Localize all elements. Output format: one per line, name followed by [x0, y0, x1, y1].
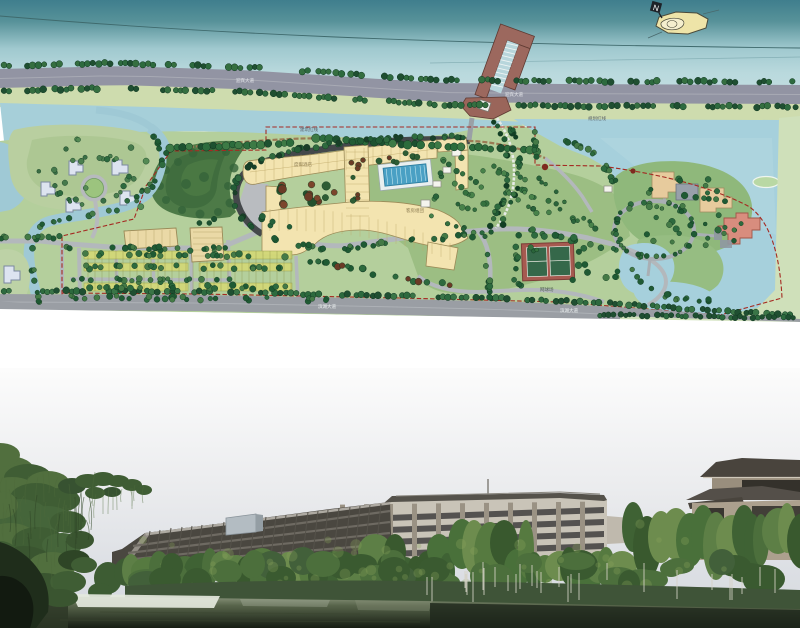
svg-text:迎宾大道: 迎宾大道: [505, 91, 523, 98]
svg-text:度假酒店: 度假酒店: [294, 161, 312, 168]
svg-text:网球场: 网球场: [540, 286, 554, 293]
svg-text:迎宾大道: 迎宾大道: [236, 77, 254, 84]
svg-text:规划红线: 规划红线: [588, 115, 606, 122]
svg-text:建筑红线: 建筑红线: [300, 126, 318, 133]
svg-text:滨湖大道: 滨湖大道: [560, 307, 578, 314]
svg-text:滨湖大道: 滨湖大道: [318, 303, 336, 310]
svg-text:客房组团: 客房组团: [406, 207, 424, 214]
